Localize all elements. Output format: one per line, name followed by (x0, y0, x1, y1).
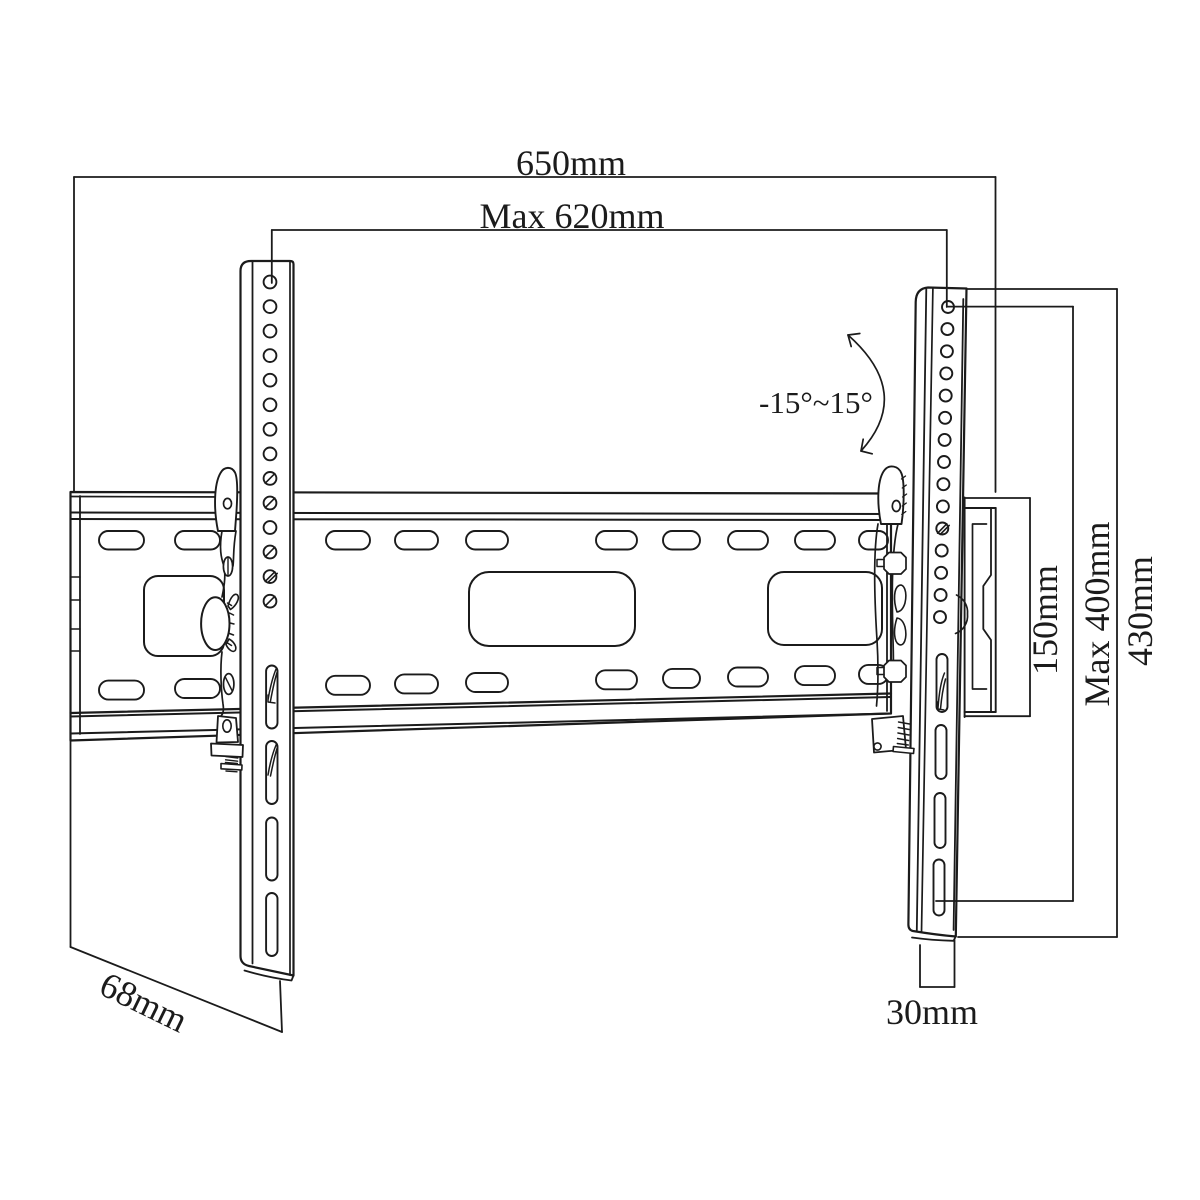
svg-text:150mm: 150mm (1025, 565, 1065, 675)
svg-text:Max 400mm: Max 400mm (1077, 522, 1117, 707)
svg-text:-15°~15°: -15°~15° (759, 385, 873, 420)
svg-text:30mm: 30mm (886, 992, 978, 1032)
svg-text:430mm: 430mm (1120, 556, 1160, 666)
